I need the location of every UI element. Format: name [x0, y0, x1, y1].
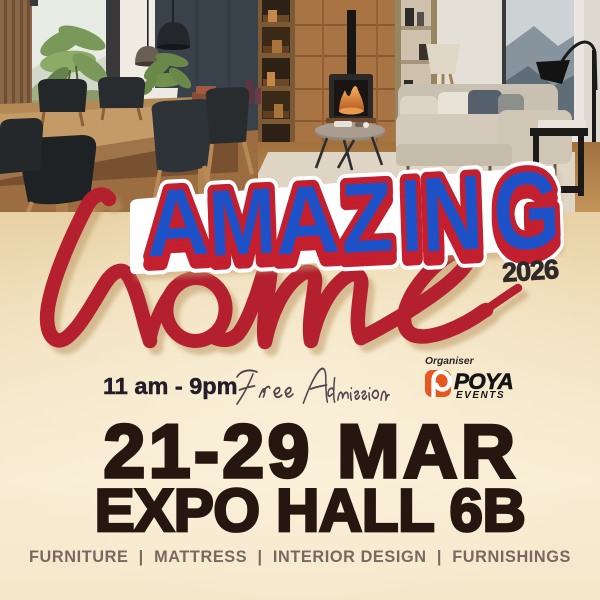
svg-text:EVENTS: EVENTS: [456, 390, 505, 401]
svg-text:A: A: [273, 164, 341, 275]
svg-text:A: A: [144, 168, 211, 277]
svg-text:M: M: [207, 169, 278, 276]
svg-text:11 am - 9pm: 11 am - 9pm: [103, 373, 238, 399]
svg-text:N: N: [420, 153, 485, 274]
svg-text:Z: Z: [339, 162, 394, 274]
svg-text:Organiser: Organiser: [425, 356, 475, 367]
svg-text:FURNITURE | MATTRESS | INT: FURNITURE | MATTRESS | INTERIOR DESIGN |…: [29, 548, 571, 566]
svg-text:EXPO HALL 6B: EXPO HALL 6B: [95, 477, 526, 544]
svg-text:2026: 2026: [501, 254, 560, 288]
